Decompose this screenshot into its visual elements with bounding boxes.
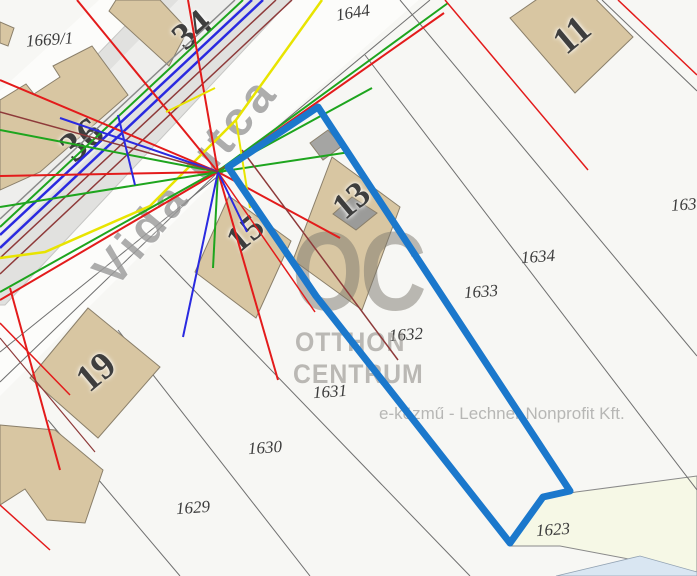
cadastral-map: Vida utca 1669/1 1644 163 1634 1633 1632…: [0, 0, 697, 576]
utility-lines-street-bundle: [0, 0, 448, 300]
map-overlay-layer: [0, 0, 697, 576]
highlighted-parcel-outline: [228, 107, 570, 543]
utility-lines-bottom-left: [0, 115, 135, 550]
utility-lines-top-right: [445, 0, 697, 170]
